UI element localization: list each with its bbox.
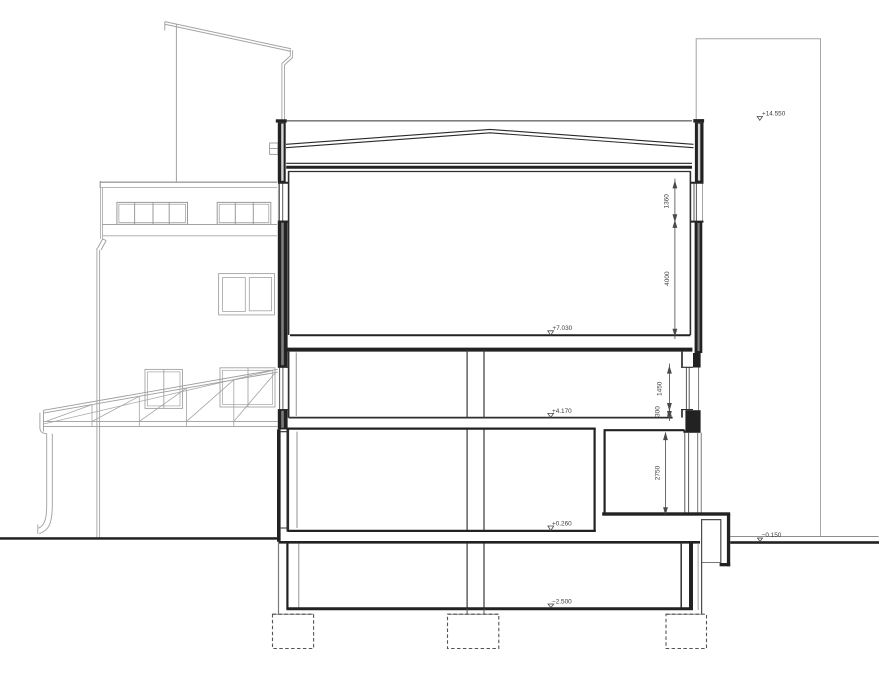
svg-text:1360: 1360 [664, 194, 671, 209]
svg-text:+14.550: +14.550 [762, 110, 786, 117]
svg-text:−2.500: −2.500 [552, 599, 572, 606]
svg-text:300: 300 [654, 406, 661, 417]
svg-text:+4.170: +4.170 [552, 408, 572, 415]
svg-text:2750: 2750 [655, 465, 662, 480]
svg-text:−0.150: −0.150 [762, 532, 782, 539]
svg-text:+0.260: +0.260 [552, 520, 572, 527]
svg-text:1450: 1450 [656, 381, 663, 396]
svg-text:+7.030: +7.030 [553, 325, 573, 332]
svg-text:4000: 4000 [664, 271, 671, 286]
